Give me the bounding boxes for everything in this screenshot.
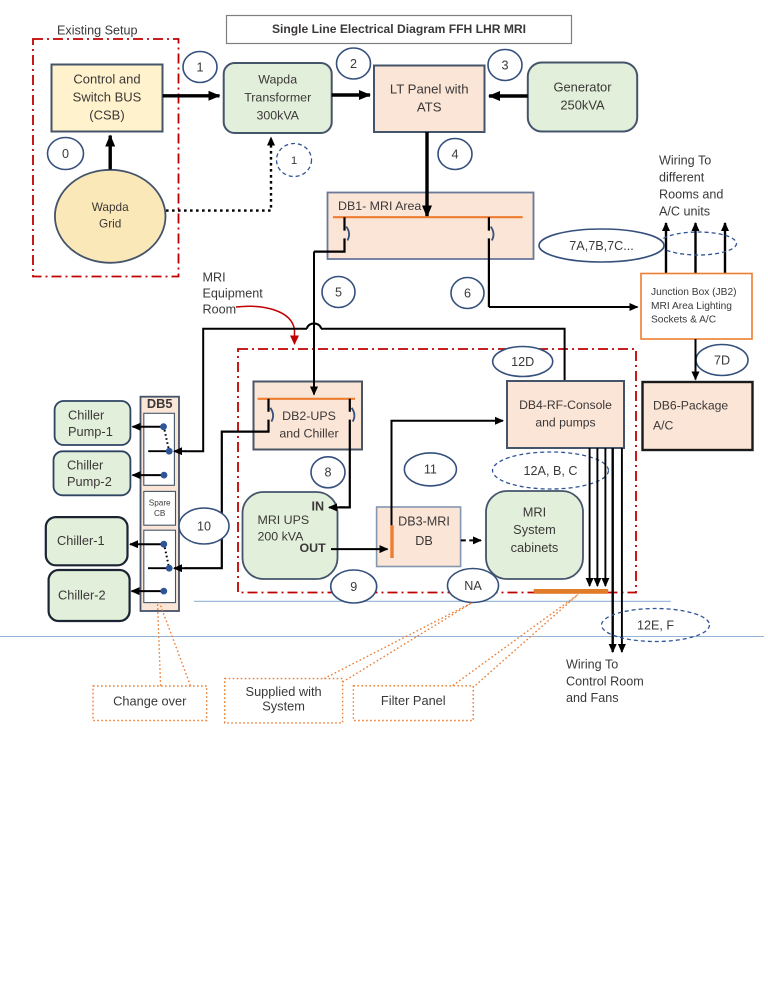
svg-text:12D: 12D [511, 355, 534, 369]
svg-text:System: System [262, 699, 305, 714]
svg-text:MRI UPS: MRI UPS [258, 513, 310, 527]
svg-text:Chiller-1: Chiller-1 [57, 533, 105, 548]
svg-text:Control Room: Control Room [566, 674, 644, 688]
svg-text:Chiller-2: Chiller-2 [58, 587, 106, 602]
svg-text:Change over: Change over [113, 693, 187, 708]
svg-text:Wapda: Wapda [258, 72, 297, 86]
svg-text:8: 8 [324, 466, 331, 480]
svg-text:MRI: MRI [523, 504, 546, 519]
svg-text:5: 5 [335, 285, 342, 299]
svg-text:6: 6 [464, 286, 471, 300]
svg-text:Control and: Control and [73, 71, 140, 86]
svg-text:DB3-MRI: DB3-MRI [398, 514, 450, 528]
svg-text:IN: IN [312, 499, 325, 513]
svg-text:and Chiller: and Chiller [279, 426, 338, 440]
svg-text:Existing Setup: Existing Setup [57, 23, 138, 37]
svg-text:cabinets: cabinets [511, 540, 559, 555]
svg-text:7D: 7D [714, 353, 730, 367]
svg-text:Pump-1: Pump-1 [68, 424, 113, 439]
svg-text:LT Panel with: LT Panel with [390, 81, 469, 96]
svg-text:DB2-UPS: DB2-UPS [282, 409, 336, 423]
svg-text:DB: DB [415, 534, 433, 548]
svg-text:2: 2 [350, 57, 357, 71]
svg-text:250kVA: 250kVA [560, 97, 605, 112]
svg-text:Pump-2: Pump-2 [67, 474, 112, 489]
svg-text:MRI: MRI [203, 270, 226, 284]
svg-text:DB6-Package: DB6-Package [653, 399, 728, 413]
svg-text:Spare: Spare [149, 499, 171, 508]
svg-text:10: 10 [197, 519, 211, 533]
svg-text:Wiring To: Wiring To [659, 153, 711, 167]
svg-text:Room: Room [203, 302, 237, 316]
svg-text:DB1- MRI Area: DB1- MRI Area [338, 199, 421, 213]
svg-text:A/C: A/C [653, 419, 674, 433]
svg-text:300kVA: 300kVA [256, 108, 299, 122]
svg-text:200 kVA: 200 kVA [258, 529, 305, 543]
svg-text:Single Line Electrical Diagram: Single Line Electrical Diagram FFH LHR M… [272, 22, 526, 36]
svg-text:9: 9 [350, 580, 357, 594]
svg-text:Rooms and: Rooms and [659, 187, 723, 201]
svg-text:Filter Panel: Filter Panel [381, 693, 446, 708]
svg-text:CB: CB [154, 509, 166, 518]
svg-text:0: 0 [62, 147, 69, 161]
svg-text:4: 4 [451, 147, 458, 161]
svg-text:11: 11 [424, 463, 437, 477]
svg-text:DB4-RF-Console: DB4-RF-Console [519, 398, 612, 412]
svg-text:Wiring To: Wiring To [566, 657, 618, 671]
svg-text:Junction Box (JB2): Junction Box (JB2) [651, 287, 737, 298]
svg-text:and Fans: and Fans [566, 691, 619, 705]
svg-text:OUT: OUT [300, 541, 327, 555]
svg-text:System: System [513, 522, 556, 537]
svg-text:7A,7B,7C...: 7A,7B,7C... [569, 239, 633, 253]
svg-text:Generator: Generator [553, 79, 612, 94]
svg-text:12E, F: 12E, F [637, 618, 674, 632]
svg-text:Transformer: Transformer [244, 90, 311, 104]
svg-text:NA: NA [464, 579, 482, 593]
svg-text:3: 3 [501, 58, 508, 72]
svg-text:Equipment: Equipment [203, 286, 264, 300]
svg-text:(CSB): (CSB) [89, 107, 124, 122]
svg-text:12A, B, C: 12A, B, C [524, 464, 578, 478]
svg-text:MRI Area Lighting: MRI Area Lighting [651, 301, 732, 312]
svg-text:Wapda: Wapda [92, 200, 129, 214]
svg-text:Switch BUS: Switch BUS [73, 89, 142, 104]
svg-text:different: different [659, 170, 705, 184]
svg-text:Chiller: Chiller [67, 457, 104, 472]
svg-text:Sockets & A/C: Sockets & A/C [651, 315, 716, 326]
svg-text:A/C units: A/C units [659, 204, 710, 218]
svg-text:1: 1 [291, 155, 297, 167]
svg-text:DB5: DB5 [147, 396, 173, 411]
svg-text:1: 1 [196, 60, 203, 74]
svg-text:Chiller: Chiller [68, 407, 105, 422]
svg-text:ATS: ATS [417, 99, 442, 114]
svg-text:Grid: Grid [99, 217, 121, 231]
svg-text:Supplied with: Supplied with [246, 684, 322, 699]
svg-text:and pumps: and pumps [535, 416, 595, 430]
